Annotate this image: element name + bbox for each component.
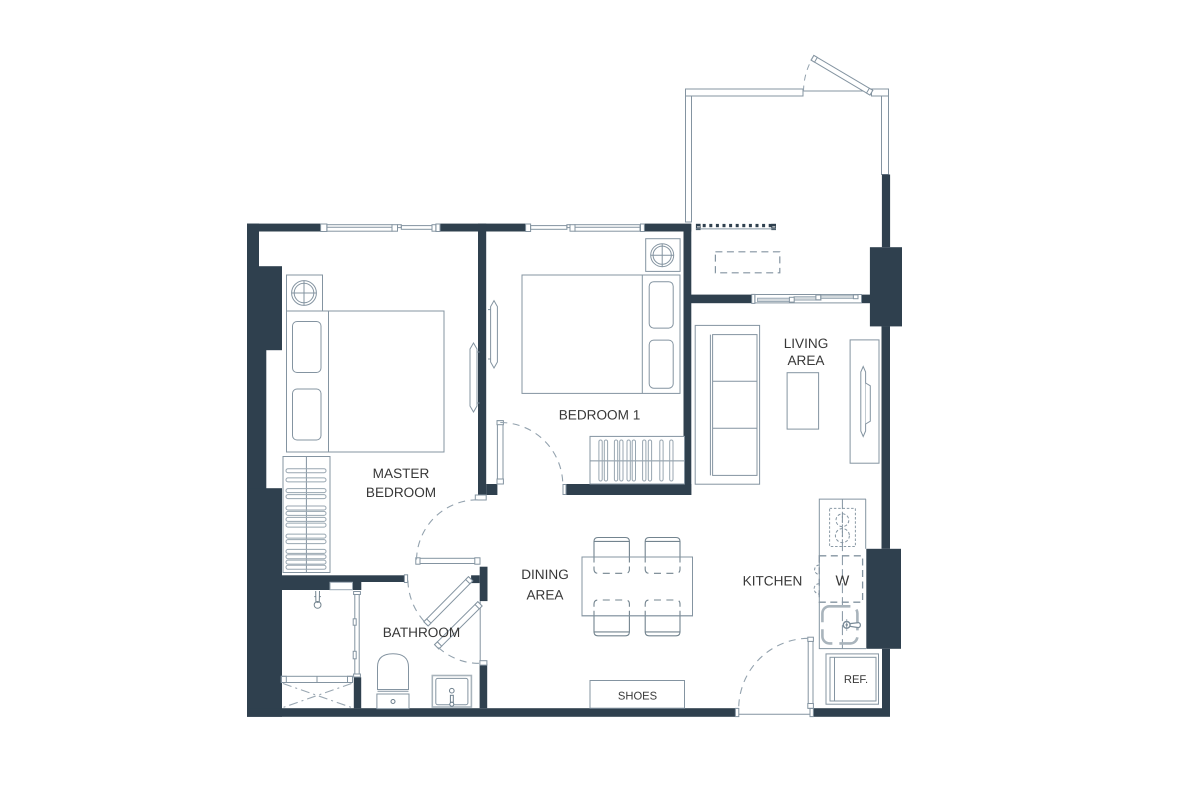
- svg-text:AREA: AREA: [787, 353, 825, 368]
- svg-text:BEDROOM: BEDROOM: [366, 485, 436, 500]
- svg-text:DINING: DINING: [521, 567, 569, 582]
- svg-text:REF.: REF.: [844, 674, 868, 686]
- svg-text:SHOES: SHOES: [618, 691, 657, 703]
- svg-text:AREA: AREA: [526, 588, 564, 603]
- svg-text:MASTER: MASTER: [373, 466, 430, 481]
- svg-text:BATHROOM: BATHROOM: [383, 625, 461, 640]
- svg-text:W: W: [836, 574, 850, 590]
- svg-text:KITCHEN: KITCHEN: [743, 574, 803, 589]
- svg-text:BEDROOM 1: BEDROOM 1: [559, 408, 641, 423]
- svg-text:LIVING: LIVING: [784, 336, 829, 351]
